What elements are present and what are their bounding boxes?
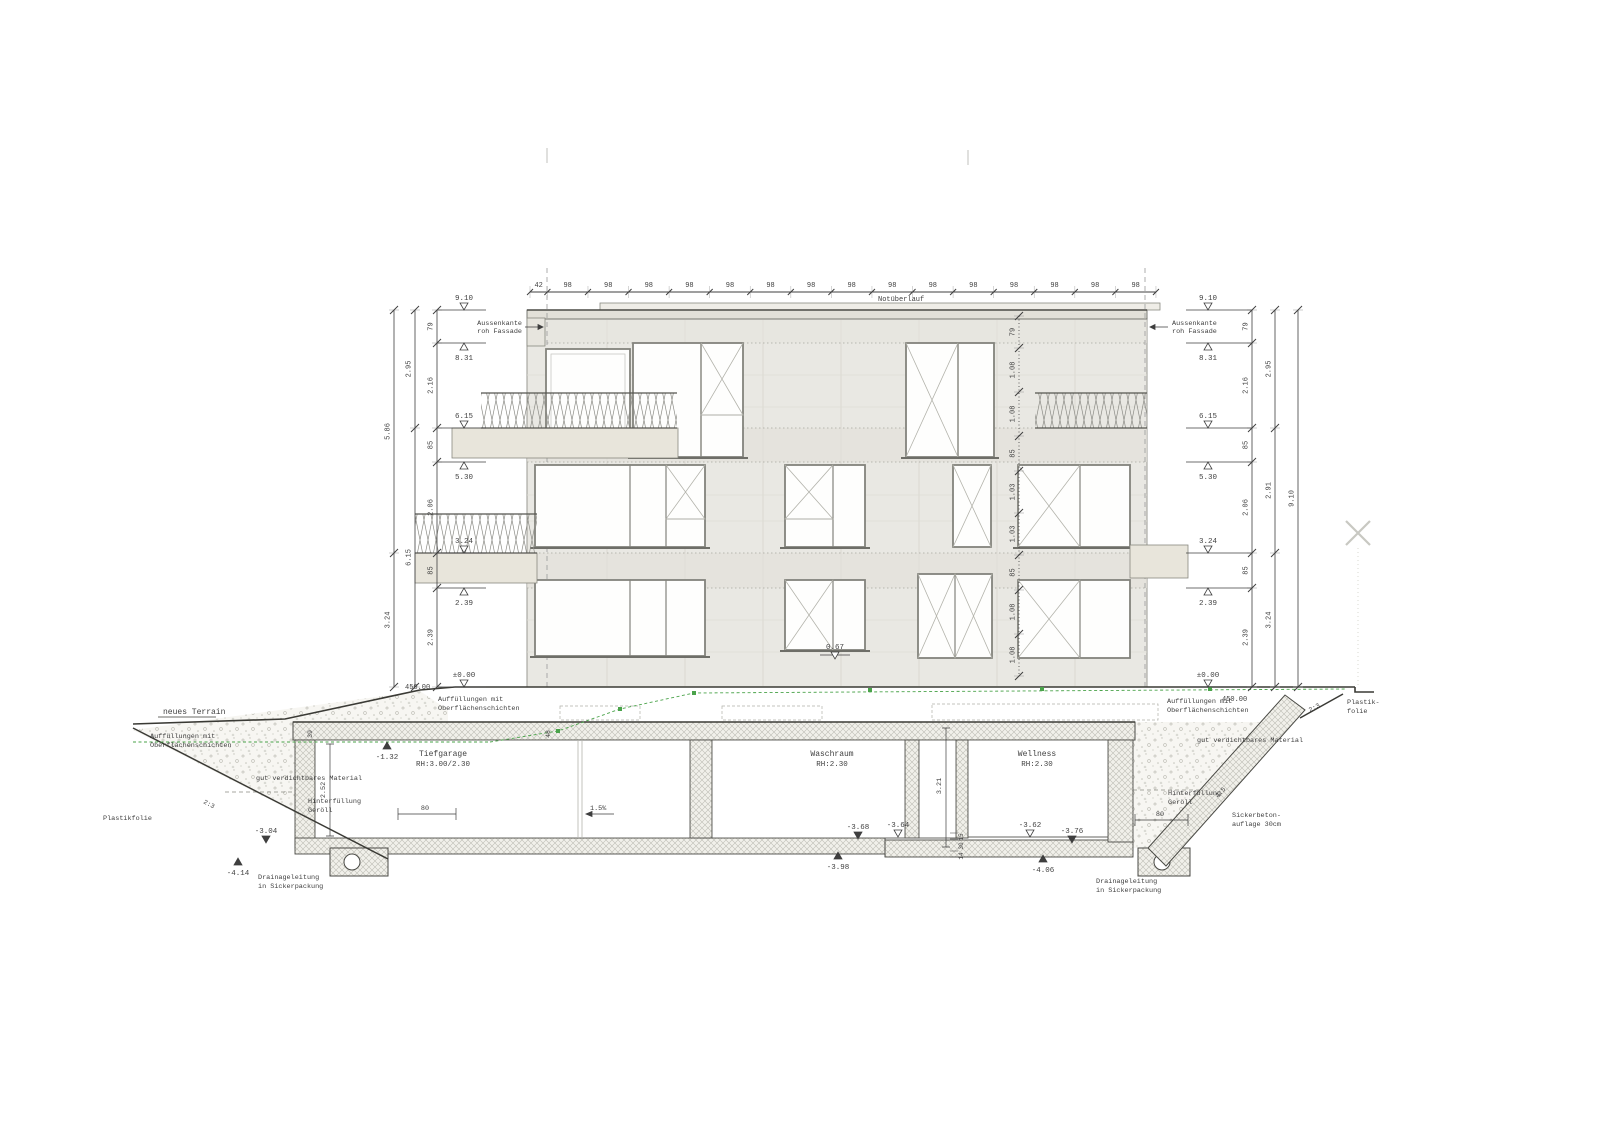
basement-wall-mid1 [690,740,712,838]
auffuellung-center-label: Auffüllungen mit [438,696,503,704]
level-triangle [460,343,468,350]
chain-value-left_inner: 2.06 [428,499,436,516]
roof-slab [527,310,1147,319]
window [531,465,709,548]
top-chain-value: 98 [847,282,855,290]
level-triangle [1204,680,1212,687]
level-value: 9.10 [455,295,474,303]
chain-value-right_inner: 2.06 [1243,499,1251,516]
basement-wall-left [295,740,315,848]
top-chain-value: 98 [1050,282,1058,290]
top-chain-value: 98 [685,282,693,290]
room-label-wellness: Wellness [1018,750,1057,759]
door [781,580,869,651]
window [781,465,869,548]
level-value: ±0.00 [453,672,476,680]
svg-text:auflage 30cm: auflage 30cm [1232,821,1281,829]
aussenkante-right-label: Aussenkante [1172,320,1217,328]
top-chain-value: 98 [604,282,612,290]
level-value: -3.62 [1019,822,1042,830]
level-triangle [1204,421,1212,428]
chain-value-facade_center: 1.08 [1010,647,1018,664]
top-chain-value: 42 [534,282,542,290]
level-triangle [262,836,270,843]
level-value: -3.98 [827,864,850,872]
chain-value-right_inner: 2.39 [1243,629,1251,646]
top-chain-value: 98 [726,282,734,290]
svg-text:roh Fassade: roh Fassade [1172,328,1217,336]
dim-hinterfuellung-right: 80 [1156,811,1164,819]
chain-value-facade_center: 1.08 [1010,362,1018,379]
slope-label-left: 2:3 [202,799,216,811]
level-value: 2.39 [1199,600,1217,608]
level-triangle [234,858,242,865]
level-value: 3.24 [1199,538,1218,546]
chain-value-left_outer: 5.86 [385,423,393,440]
level-triangle [1204,343,1212,350]
level-value: ±0.00 [1197,672,1220,680]
dim-slab-left: 48 [545,730,552,738]
svg-text:Oberflächenschichten: Oberflächenschichten [438,705,520,713]
survey-cross-marker [1346,521,1370,545]
room-waschraum [712,740,905,838]
level-value: -4.06 [1032,867,1055,875]
room-label-tiefgarage: Tiefgarage [419,750,467,759]
dim-basement-height: 3.21 [936,778,944,794]
chain-value-right_mid: 2.91 [1266,482,1274,499]
chain-value-right_outer: 9.10 [1289,490,1297,507]
drainage-pipe-left [344,854,360,870]
neues-terrain-label: neues Terrain [163,708,226,717]
canopy-slab-right [1130,545,1188,578]
svg-text:in Sickerpackung: in Sickerpackung [1096,887,1161,895]
svg-text:Oberflächenschichten: Oberflächenschichten [150,742,232,750]
level-450-left: 450.00 [405,684,430,692]
basement-wall-mid3 [956,740,968,838]
gut-verdichtbar-left-label: gut verdichtbares Material [256,775,362,783]
gut-verdichtbar-right-label: gut verdichtbares Material [1197,737,1303,745]
level-450-right: 450.00 [1222,696,1247,704]
top-chain-value: 98 [645,282,653,290]
chain-value-facade_center: 85 [1010,568,1018,576]
room-label-waschraum: Waschraum [810,750,853,759]
chain-value-right_inner: 85 [1243,441,1251,449]
svg-text:folie: folie [1347,708,1367,716]
chain-value-left_inner: 2.16 [428,377,436,394]
svg-text:RH:2.30: RH:2.30 [1021,761,1053,769]
railing [1035,393,1147,428]
chain-value-left_mid: 6.15 [406,549,414,566]
level-value: -3.64 [887,822,910,830]
dim-room-left-height: 2.52 [320,782,328,798]
top-dimension-chain: 42989898989898989898989898989898 [527,282,1159,298]
slope-label-right: 2:3 [1308,702,1322,714]
top-chain-value: 98 [969,282,977,290]
window [902,343,998,458]
chain-value-facade_center: 1.03 [1010,484,1018,501]
window [1018,580,1130,658]
chain-value-right_inner: 79 [1243,322,1251,330]
level-triangle [460,303,468,310]
basement-floor-slab-right [885,840,1133,857]
level-value: 6.15 [455,413,474,421]
chain-value-right_mid: 3.24 [1266,612,1274,629]
railing [481,393,677,428]
chain-value-left_mid: 2.95 [406,361,414,378]
window [953,465,991,547]
svg-text:RH:3.00/2.30: RH:3.00/2.30 [416,761,471,769]
basement-top-slab [293,722,1135,740]
level-value: 5.30 [1199,474,1218,482]
hidden-edges [560,704,1158,720]
top-chain-value: 98 [1131,282,1139,290]
double-door [918,574,992,658]
chain-value-left_outer: 3.24 [385,612,393,629]
drawing-svg: Notüberlauf Aussenkante roh Fassade Auss… [0,0,1600,1132]
level-value: -3.04 [255,828,278,836]
level-triangle [1204,303,1212,310]
top-chain-value: 98 [888,282,896,290]
architectural-section-drawing: Notüberlauf Aussenkante roh Fassade Auss… [0,0,1600,1132]
svg-text:Oberflächenschichten: Oberflächenschichten [1167,707,1249,715]
chain-value-facade_center: 1.03 [1010,526,1018,543]
level-value: 2.39 [455,600,473,608]
chain-value-left_inner: 2.39 [428,629,436,646]
window [1014,465,1134,548]
hinterfuellung-left-label: Hinterfüllung [308,798,361,806]
level-value: 8.31 [1199,355,1218,363]
level-value: -3.76 [1061,828,1084,836]
top-chain-value: 98 [807,282,815,290]
plastic-foil-line-right [1300,694,1343,718]
level-value: 9.10 [1199,295,1218,303]
chain-value-right_inner: 85 [1243,566,1251,574]
sickerbeton-label: Sickerbeton- [1232,812,1281,820]
plastikfolie-label: Plastikfolie [103,815,152,823]
dim-layer-top: 15 [958,833,965,841]
dim-layer-bot: 14 [958,852,965,860]
drainage-right-label: Drainageleitung [1096,878,1157,886]
level-value: -4.14 [227,870,250,878]
drainage-left-label: Drainageleitung [258,874,319,882]
chain-value-left_inner: 79 [428,322,436,330]
top-chain-value: 98 [1010,282,1018,290]
top-chain-value: 98 [929,282,937,290]
dim-layer-mid: 30 [958,842,965,850]
hinterfuellung-right-label: Hinterfüllung [1168,790,1221,798]
svg-text:roh Fassade: roh Fassade [477,328,522,336]
level-value: 6.15 [1199,413,1218,421]
crop-marks [547,148,968,165]
chain-value-left_inner: 85 [428,441,436,449]
chain-value-right_inner: 2.16 [1243,377,1251,394]
room-tiefgarage [315,740,690,838]
level-value: 8.31 [455,355,474,363]
level-triangle [460,588,468,595]
level-value: 0.67 [826,644,844,652]
basement-wall-right [1108,740,1133,842]
chain-value-facade_center: 85 [1010,449,1018,457]
level-triangle [460,462,468,469]
balcony-slab [452,428,678,458]
notueberlauf-label: Notüberlauf [878,296,924,304]
svg-text:Geröll: Geröll [308,807,332,815]
chain-value-facade_center: 1.08 [1010,406,1018,423]
level-value: 5.30 [455,474,474,482]
svg-text:Geröll: Geröll [1168,799,1192,807]
svg-text:RH:2.30: RH:2.30 [816,761,848,769]
svg-text:in Sickerpackung: in Sickerpackung [258,883,323,891]
top-chain-value: 98 [563,282,571,290]
level-value: -1.32 [376,754,399,762]
chain-value-right_mid: 2.95 [1266,361,1274,378]
garage-slope-label: 1.5% [590,805,607,813]
top-chain-value: 98 [1091,282,1099,290]
aussenkante-left-label: Aussenkante [477,320,522,328]
level-value: -3.68 [847,824,870,832]
level-triangle [1204,588,1212,595]
chain-value-facade_center: 1.08 [1010,604,1018,621]
chain-value-left_inner: 85 [428,566,436,574]
chain-value-facade_center: 79 [1010,328,1018,336]
level-triangle [1204,546,1212,553]
plastikfolie-right-label: Plastik- [1347,699,1380,707]
railing [415,514,537,553]
level-triangle [460,421,468,428]
top-chain-value: 98 [766,282,774,290]
auffuellung-left-label: Auffüllungen mit [150,733,215,741]
attic-parapet-left [527,318,545,346]
level-triangle [1204,462,1212,469]
roof-parapet [600,303,1160,310]
dim-wall-top: 39 [307,730,314,738]
window [531,580,709,657]
dim-hinterfuellung-left: 80 [421,805,429,813]
level-triangle [460,680,468,687]
level-value: 3.24 [455,538,474,546]
